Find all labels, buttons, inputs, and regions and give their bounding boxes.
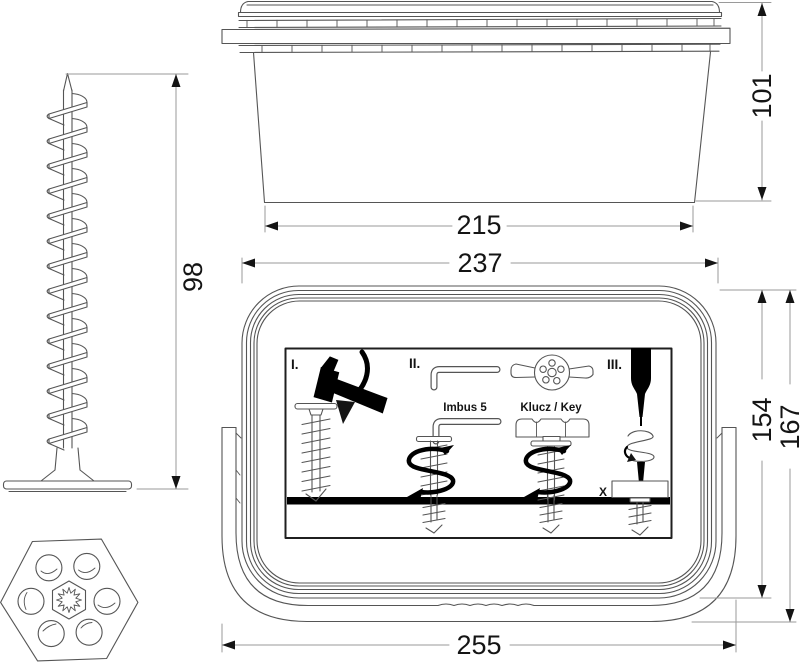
torx-star bbox=[57, 588, 82, 613]
dim-front-total-height: 167 bbox=[775, 404, 800, 449]
step1-screw-neck bbox=[309, 409, 323, 415]
step2-screw-washer bbox=[417, 437, 452, 442]
insulation-plate bbox=[612, 481, 668, 498]
lid-rim-band bbox=[239, 13, 722, 17]
cap-hole bbox=[74, 553, 100, 579]
dim-front-body-height: 154 bbox=[747, 397, 777, 442]
lid-segment-band-top bbox=[239, 19, 721, 28]
lid-top-plate bbox=[247, 2, 713, 6]
step-3-label: III. bbox=[607, 357, 622, 372]
cap-hole bbox=[38, 621, 64, 647]
drawing-canvas: I. II. III. Imbus 5 Klucz / Key X 98 101 bbox=[0, 0, 800, 662]
hex-cap-outline bbox=[1, 539, 138, 661]
depth-mark-label: X bbox=[599, 485, 607, 499]
label-panel bbox=[286, 349, 672, 539]
bucket-side-view bbox=[222, 2, 730, 203]
screw-shaft bbox=[64, 90, 73, 448]
screw-flare bbox=[41, 470, 94, 481]
cap-hole bbox=[94, 588, 120, 614]
key-tool-label: Klucz / Key bbox=[520, 402, 582, 414]
step-1-label: I. bbox=[291, 357, 299, 372]
step-2-label: II. bbox=[409, 356, 420, 371]
anchor-screw-side-view bbox=[4, 74, 132, 492]
cap-hole bbox=[36, 555, 62, 581]
step1-screw-washer bbox=[295, 404, 337, 410]
dim-box-height: 101 bbox=[747, 73, 777, 118]
ground-line bbox=[287, 497, 670, 505]
dimensions: 98 101 215 237 154 167 255 bbox=[66, 3, 800, 661]
dim-front-total-width: 255 bbox=[456, 630, 501, 660]
technical-drawing-sheet: I. II. III. Imbus 5 Klucz / Key X 98 101 bbox=[0, 0, 800, 662]
instruction-label: I. II. III. Imbus 5 Klucz / Key X bbox=[286, 348, 672, 538]
dim-front-top-width: 237 bbox=[457, 248, 502, 278]
hex-cap-top-view bbox=[1, 539, 138, 661]
lid-flange bbox=[222, 28, 730, 43]
cap-hole bbox=[18, 588, 44, 614]
plate-screw-head bbox=[630, 498, 650, 502]
allen-key-label: Imbus 5 bbox=[443, 402, 487, 414]
bucket-body-outline bbox=[254, 52, 711, 203]
screw-tip bbox=[64, 74, 73, 92]
lid-segment-band-bottom bbox=[239, 44, 720, 52]
screw-stem bbox=[55, 448, 80, 470]
screw-base-plate bbox=[4, 481, 132, 489]
dim-box-bottom-width: 215 bbox=[456, 210, 501, 240]
dim-screw-length: 98 bbox=[178, 262, 208, 292]
